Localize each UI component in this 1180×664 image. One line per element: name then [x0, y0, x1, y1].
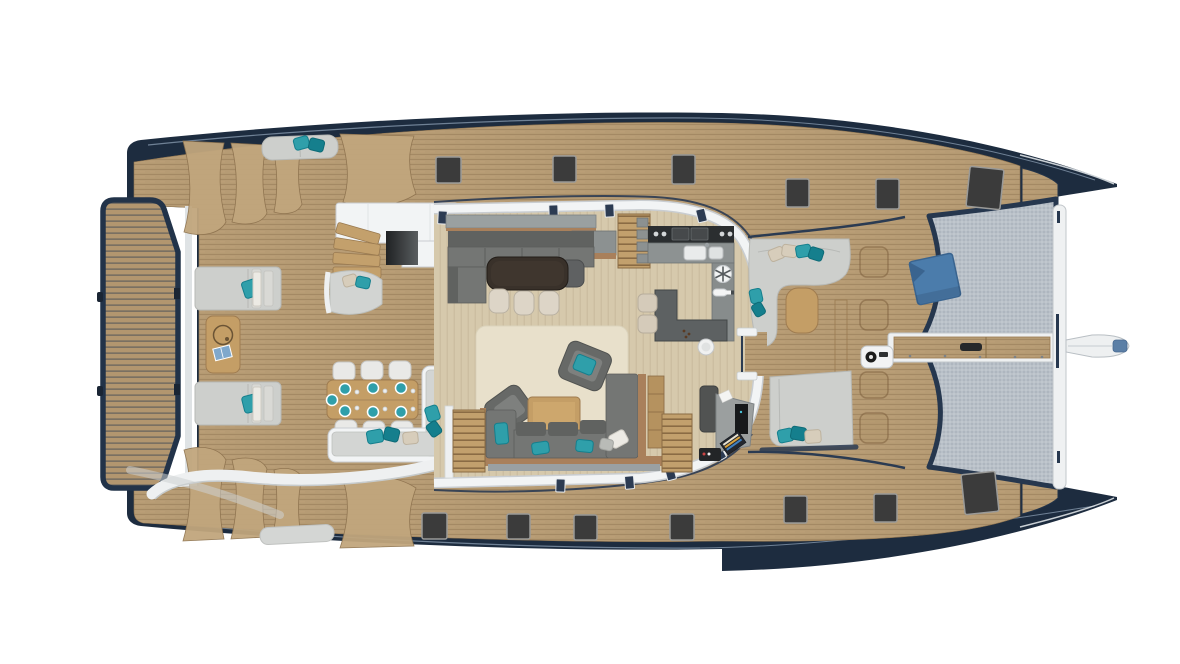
- dining-chair: [333, 362, 355, 381]
- glass: [411, 389, 415, 393]
- stove-burner: [728, 232, 733, 237]
- place-setting-plate: [340, 384, 351, 395]
- dining-chair: [361, 361, 383, 380]
- gangway: [888, 333, 1056, 362]
- stove-grate: [691, 228, 708, 240]
- companionway-stairs: [662, 414, 692, 472]
- faucet: [705, 243, 709, 247]
- pillow: [805, 429, 822, 443]
- side-door: [737, 328, 767, 380]
- gangway-fastener: [1041, 356, 1044, 359]
- sun-lounger: [195, 382, 281, 425]
- sun-lounger: [195, 267, 281, 310]
- window-mullion: [624, 476, 634, 490]
- cockpit-table: [786, 288, 818, 333]
- deck-hatch: [436, 157, 461, 183]
- gangway-fastener: [944, 355, 947, 358]
- yacht-deck-plan: [0, 0, 1180, 664]
- gangway-fastener: [1014, 356, 1017, 359]
- stair-shelf-box: [637, 218, 648, 227]
- foredeck-locker-panel: [860, 413, 888, 443]
- place-setting-plate: [340, 406, 351, 417]
- stair-shelf-box: [637, 230, 648, 239]
- companionway-opening: [386, 231, 418, 265]
- window-mullion: [605, 204, 615, 217]
- saloon-dining-table: [487, 257, 568, 290]
- stern-cleat: [97, 292, 103, 302]
- stove-grate: [672, 228, 689, 240]
- port-stairs: [445, 406, 485, 478]
- pillow: [781, 244, 798, 258]
- foredeck-locker-panel: [860, 247, 888, 277]
- towel: [253, 272, 261, 306]
- net-cushion: [909, 253, 961, 305]
- coffee-beans: [685, 336, 688, 339]
- pillow: [402, 431, 418, 445]
- coffee-beans: [688, 333, 691, 336]
- platform-hinge: [174, 384, 180, 395]
- pillow: [494, 422, 509, 444]
- pillow: [599, 438, 614, 451]
- saloon-dining-chair: [514, 291, 534, 315]
- deck-hatch: [507, 514, 530, 539]
- place-setting-plate: [368, 407, 379, 418]
- pillow: [749, 288, 764, 304]
- stern-cleat: [97, 386, 103, 396]
- pillow: [575, 439, 593, 453]
- window-mullion: [556, 479, 565, 492]
- deck-hatch: [672, 155, 695, 184]
- stove-burner: [720, 232, 725, 237]
- deck-hatch: [553, 156, 576, 182]
- glass: [411, 407, 415, 411]
- stair-shelf-box: [637, 242, 648, 251]
- foredeck-locker-panel: [860, 372, 888, 398]
- foredeck-locker-panel: [860, 300, 888, 330]
- gangway-fastener: [909, 355, 912, 358]
- stair-shelf-box: [637, 254, 648, 263]
- place-setting-plate: [327, 395, 338, 406]
- crossbeam-fitting: [1057, 211, 1060, 223]
- place-setting-plate: [396, 407, 407, 418]
- deck-hatch: [574, 515, 597, 540]
- glass: [383, 389, 387, 393]
- pillow: [531, 441, 550, 455]
- bar-stool: [638, 315, 657, 333]
- pillow: [355, 276, 371, 290]
- saloon-dining-chair: [539, 291, 559, 315]
- round-stool: [698, 339, 714, 355]
- deck-hatch: [670, 514, 694, 540]
- gangway-cleat: [960, 343, 982, 351]
- glass: [383, 407, 387, 411]
- crossbeam-fitting: [1056, 314, 1059, 368]
- towel: [253, 387, 261, 421]
- swim-platform: [103, 200, 178, 488]
- freezer-icon: [715, 266, 732, 283]
- glass: [355, 390, 359, 394]
- bowsprit-pad: [1113, 340, 1127, 352]
- windlass-console: [861, 346, 893, 368]
- sink-basin: [684, 246, 706, 260]
- transom-step: [185, 206, 192, 482]
- place-setting-plate: [368, 383, 379, 394]
- bow-crossbeam: [1053, 205, 1066, 489]
- deck-hatch: [966, 166, 1004, 209]
- place-setting-plate: [396, 383, 407, 394]
- dining-chair: [389, 361, 411, 380]
- deck-plan-canvas: [0, 0, 1180, 664]
- sink-basin: [709, 247, 723, 259]
- deck-hatch: [874, 494, 897, 522]
- platform-hinge: [174, 288, 180, 299]
- deck-hatch: [961, 471, 999, 514]
- bar-stool: [638, 294, 657, 312]
- deck-hatch: [784, 496, 807, 523]
- crossbeam-fitting: [1057, 451, 1060, 463]
- stove-burner: [654, 232, 659, 237]
- deck-hatch: [876, 179, 899, 209]
- pillow: [366, 429, 384, 445]
- coffee-beans: [683, 330, 686, 333]
- aft-coffee-table: [206, 316, 240, 373]
- gangway-fastener: [979, 356, 982, 359]
- deck-hatch: [786, 179, 809, 207]
- nav-screens: [735, 404, 748, 434]
- glass: [355, 406, 359, 410]
- stern-pad: [260, 524, 335, 545]
- cockpit-wood-step: [835, 300, 847, 378]
- saloon-dining-chairs: [489, 289, 559, 315]
- deck-hatch: [422, 513, 447, 539]
- nav-bench: [700, 386, 718, 432]
- stove-burner: [662, 232, 667, 237]
- bowsprit: [1066, 335, 1129, 357]
- saloon-dining-chair: [489, 289, 509, 313]
